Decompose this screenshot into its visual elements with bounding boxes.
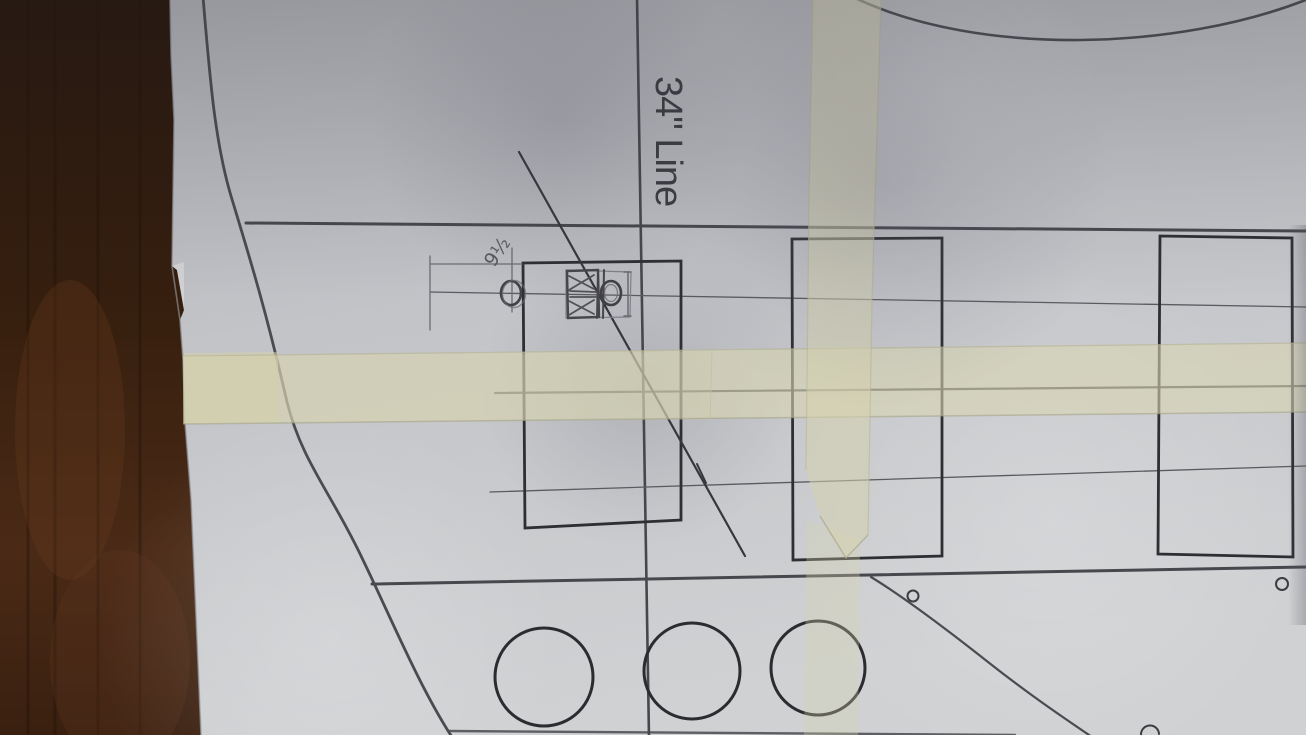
photo-of-plan: 34" Line 9½	[0, 0, 1306, 735]
plan-photo-canvas: 34" Line 9½	[0, 0, 1306, 735]
tape-h-mid-layer	[184, 352, 712, 422]
right-edge-shadow	[1288, 225, 1306, 625]
wood-light-patch	[15, 280, 125, 580]
